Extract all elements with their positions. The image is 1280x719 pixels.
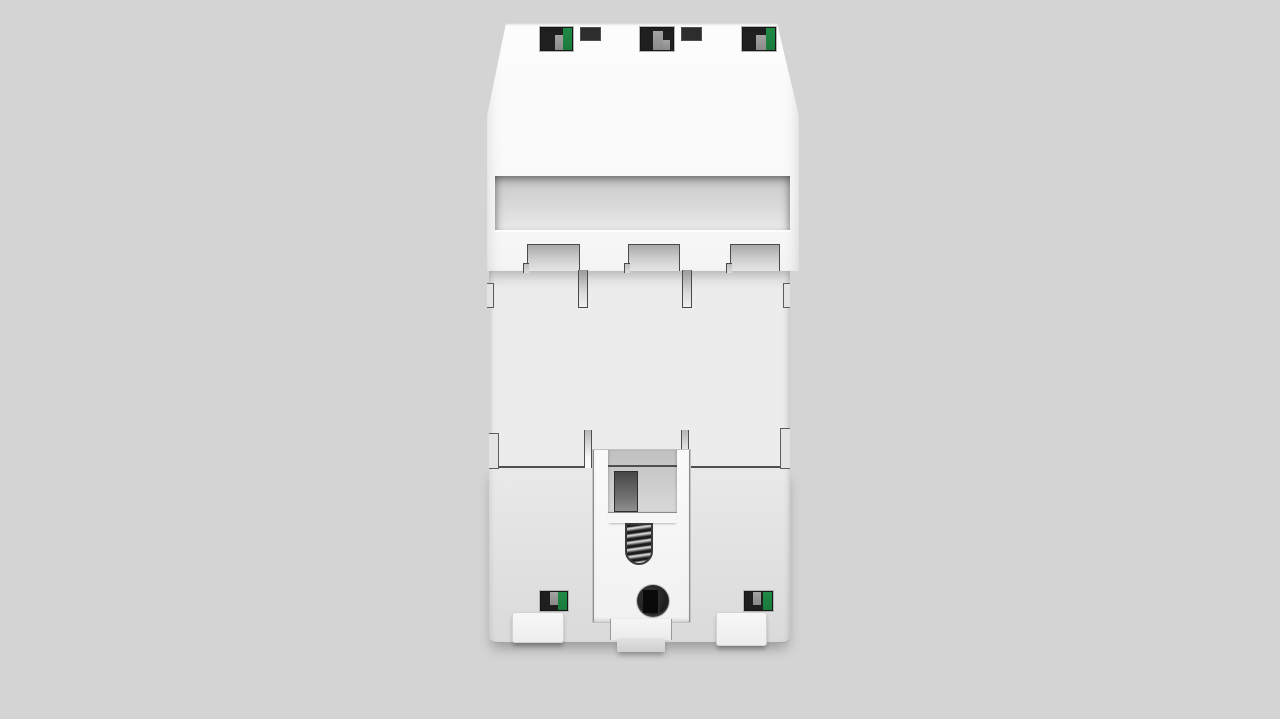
green-indicator: [763, 592, 772, 610]
din-rail-clip: [593, 450, 690, 622]
green-indicator: [558, 592, 567, 610]
clip-bottom-tab: [610, 619, 672, 640]
clip-spring: [625, 523, 653, 565]
clip-release-keyway: [643, 590, 660, 613]
edge-notch-lower-left: [489, 433, 499, 469]
edge-notch-lower-right: [780, 428, 790, 469]
step-ledge-right: [690, 466, 789, 468]
mounting-foot-right: [716, 612, 767, 646]
terminal-contact-gray: [550, 592, 558, 605]
top-terminal-window-1: [540, 27, 573, 51]
din-rail-module-rear-view: [487, 23, 800, 663]
vent-slot-1: [580, 27, 601, 41]
terminal-contact-gray: [753, 592, 761, 605]
edge-notch-upper-left: [487, 283, 494, 308]
clip-cavity-lip: [608, 465, 677, 467]
terminal-contact-gray: [653, 31, 663, 50]
pole-divider-tab-1: [527, 244, 580, 271]
terminal-contact-gray-small: [663, 40, 670, 50]
edge-notch-upper-right: [783, 283, 790, 308]
clip-foot: [617, 638, 665, 652]
clip-release-hole: [637, 585, 669, 617]
pole-divider-tab-2: [628, 244, 680, 271]
green-indicator: [766, 28, 775, 50]
bottom-terminal-window-right: [744, 591, 773, 611]
label-recess-panel: [495, 176, 790, 232]
upper-housing: [487, 23, 799, 271]
green-indicator: [563, 28, 572, 50]
divider-slot-2: [682, 270, 692, 308]
top-terminal-window-3: [742, 27, 776, 51]
render-canvas: [0, 0, 1280, 719]
back-surface: [489, 270, 790, 470]
terminal-contact-gray: [756, 35, 766, 50]
top-terminal-window-2: [640, 27, 674, 51]
mounting-foot-left: [512, 612, 564, 643]
pole-divider-tab-3: [730, 244, 780, 271]
clip-spring-retainer: [608, 512, 677, 523]
bottom-terminal-window-left: [540, 591, 568, 611]
divider-slot-1: [578, 270, 588, 308]
step-ledge-left: [491, 466, 586, 468]
clip-latch-window: [614, 471, 638, 512]
clip-guide-slot-left: [584, 430, 592, 468]
vent-slot-2: [681, 27, 702, 41]
